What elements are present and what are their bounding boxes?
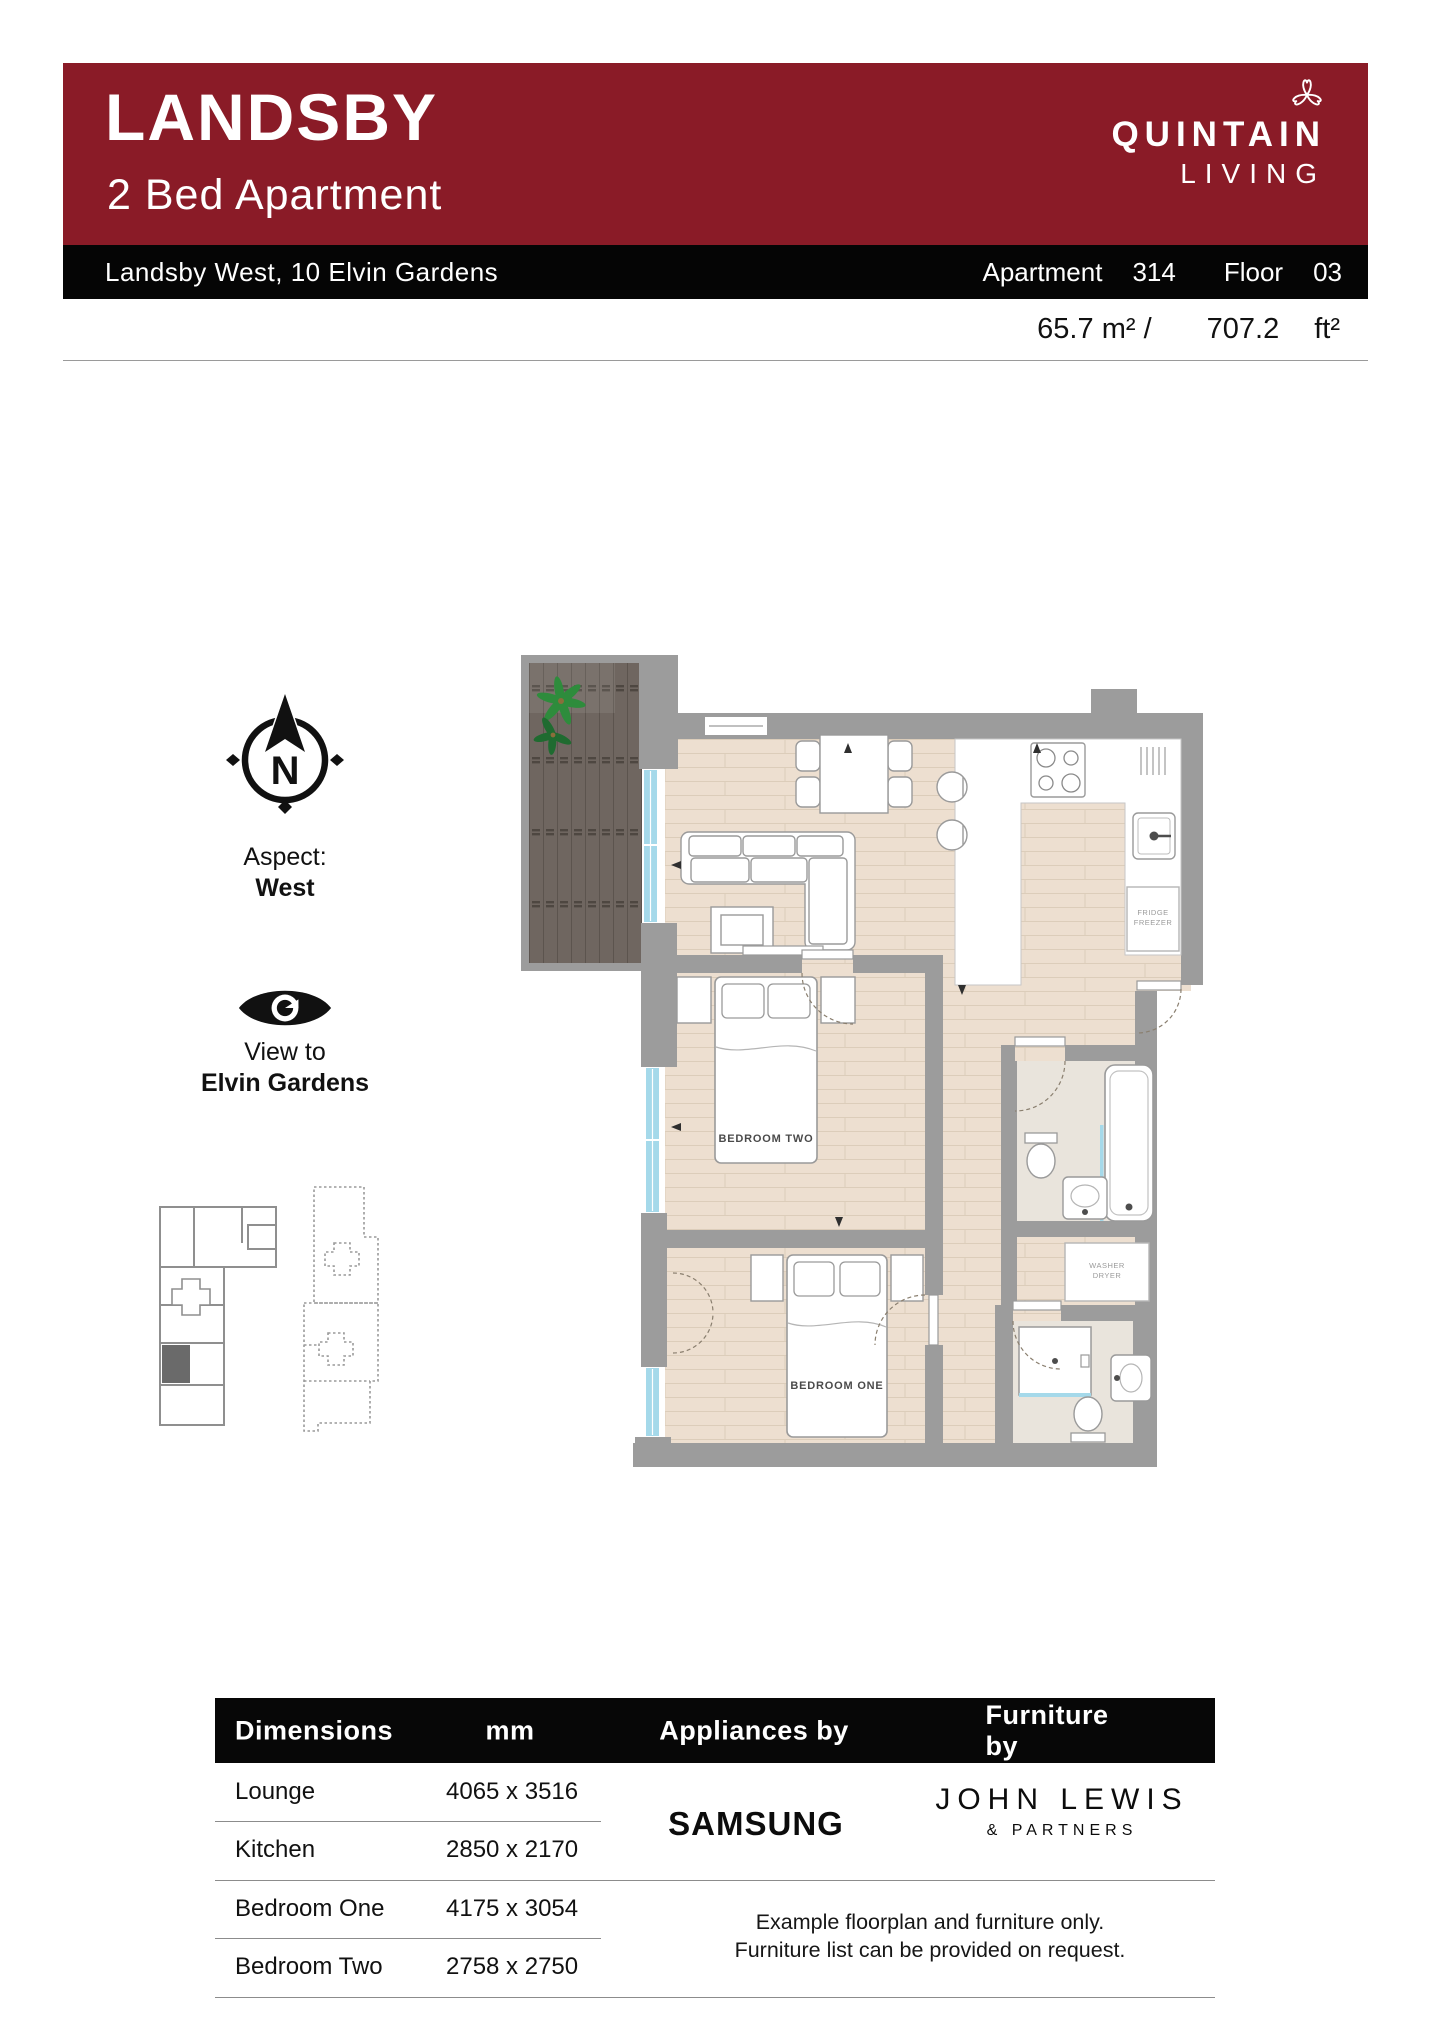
header-banner: LANDSBY 2 Bed Apartment QUINTAIN LIVING	[63, 63, 1368, 245]
eye-icon	[237, 982, 333, 1034]
sink-icon	[1133, 813, 1175, 859]
basin-icon	[1111, 1355, 1151, 1401]
table-row: Kitchen 2850 x 2170	[215, 1821, 601, 1879]
bedroom-two-label: BEDROOM TWO	[719, 1133, 814, 1145]
appliances-brand-logo: SAMSUNG	[668, 1805, 844, 1843]
site-unit-highlight	[162, 1345, 190, 1383]
view-label: View to	[195, 1038, 375, 1067]
toilet-icon	[1071, 1397, 1105, 1442]
view-value: Elvin Gardens	[165, 1069, 405, 1098]
svg-text:WASHER: WASHER	[1089, 1261, 1125, 1270]
site-building-solid	[160, 1207, 276, 1425]
furniture-brand-sub: & PARTNERS	[987, 1822, 1138, 1840]
col-mm: mm	[485, 1715, 534, 1746]
dimensions-table: Dimensions mm Appliances by Furniture by…	[215, 1698, 1215, 2008]
address-bar: Landsby West, 10 Elvin Gardens Apartment…	[63, 245, 1368, 299]
row-divider	[215, 1880, 1215, 1881]
brand-name: QUINTAIN	[1111, 115, 1326, 155]
floor-value: 03	[1313, 257, 1342, 288]
floorplan-sheet: LANDSBY 2 Bed Apartment QUINTAIN LIVING …	[0, 0, 1432, 2025]
brand-division: LIVING	[1111, 158, 1326, 190]
fridge-freezer: FRIDGE FREEZER	[1127, 887, 1179, 951]
area-metric: 65.7 m² /	[1037, 313, 1151, 346]
disclaimer: Example floorplan and furniture only. Fu…	[645, 1908, 1215, 1964]
site-plan	[148, 1185, 398, 1457]
svg-text:FREEZER: FREEZER	[1134, 918, 1173, 927]
table-row: Bedroom One 4175 x 3054	[215, 1880, 601, 1938]
row-divider	[215, 1938, 601, 1939]
floor-label: Floor	[1224, 257, 1283, 288]
washer-dryer: WASHER DRYER	[1065, 1243, 1149, 1301]
brand-logo: QUINTAIN LIVING	[1111, 75, 1326, 190]
table-row: Bedroom Two 2758 x 2750	[215, 1938, 601, 1996]
svg-text:FRIDGE: FRIDGE	[1137, 908, 1168, 917]
top-wall-window	[705, 717, 767, 735]
aspect-label: Aspect:	[200, 843, 370, 872]
col-appliances: Appliances by	[659, 1715, 849, 1746]
floorplan: FRIDGE FREEZER	[515, 655, 1215, 1495]
furniture-brand-logo: JOHN LEWIS	[935, 1783, 1188, 1817]
row-divider	[215, 1997, 1215, 1998]
compass-icon: N	[225, 688, 345, 830]
shower-icon	[1019, 1327, 1091, 1397]
bedside-table	[751, 1255, 783, 1301]
table-row: Lounge 4065 x 3516	[215, 1763, 601, 1821]
area-row: 65.7 m² / 707.2 ft²	[63, 299, 1368, 361]
window-bedroom-two	[645, 1067, 660, 1213]
aspect-value: West	[200, 874, 370, 903]
address-text: Landsby West, 10 Elvin Gardens	[105, 257, 498, 288]
window-bedroom-one	[645, 1367, 660, 1437]
table-header: Dimensions mm Appliances by Furniture by	[215, 1698, 1215, 1763]
site-building-dotted	[304, 1187, 378, 1431]
balcony	[527, 661, 645, 969]
basin-icon	[1063, 1177, 1107, 1219]
trillium-icon	[1111, 75, 1326, 113]
bedside-table	[677, 977, 711, 1023]
window-lounge	[643, 769, 658, 923]
bedside-table	[891, 1255, 923, 1301]
page-title: LANDSBY	[105, 79, 438, 155]
row-divider	[215, 1821, 601, 1822]
apartment-label: Apartment	[982, 257, 1102, 288]
col-dimensions: Dimensions	[235, 1715, 393, 1746]
page-subtitle: 2 Bed Apartment	[107, 171, 442, 220]
bathtub-icon	[1100, 1065, 1153, 1221]
svg-text:DRYER: DRYER	[1093, 1271, 1122, 1280]
col-furniture: Furniture by	[986, 1700, 1139, 1762]
bedroom-one-label: BEDROOM ONE	[790, 1380, 883, 1392]
area-imperial-unit: ft²	[1314, 313, 1340, 346]
area-imperial-value: 707.2	[1207, 313, 1280, 346]
svg-text:N: N	[271, 749, 300, 793]
apartment-value: 314	[1132, 257, 1175, 288]
toilet-icon	[1025, 1133, 1057, 1178]
